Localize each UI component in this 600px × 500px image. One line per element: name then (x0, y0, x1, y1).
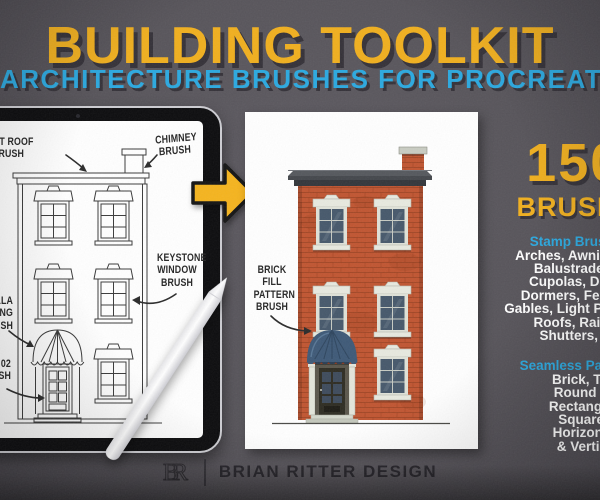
pattern-brushes-header: Seamless Pattern Brushes: (452, 359, 600, 373)
promo-column: 150+ BRUSHES! Stamp Brushes Include: Arc… (452, 136, 600, 453)
label-chimney-brush: CHIMNEY BRUSH (155, 131, 195, 159)
brush-count: 150+ (436, 136, 600, 190)
brick-label-arrow (267, 312, 319, 340)
pattern-brushes-line: Square Blocks, (452, 413, 600, 426)
br-monogram-icon: B R (163, 457, 191, 487)
annotation-arrows (7, 155, 176, 398)
brush-count-label: BRUSHES! (436, 194, 600, 221)
stamp-brushes-line: Shutters, & Windows (452, 329, 600, 342)
label-flat-roof-brush: FLAT ROOF BRUSH (0, 136, 34, 161)
camera-icon (76, 114, 80, 118)
label-door-02-brush: DOOR 02 BRUSH (0, 358, 11, 383)
stamp-brushes-line: Cupolas, Domes, Doors, (452, 275, 600, 288)
pattern-brushes-line: Horizontal Lines, (452, 426, 600, 439)
stamp-brushes-line: Arches, Awnings, Balconies, (452, 249, 600, 262)
brand-name: BRIAN RITTER DESIGN (219, 462, 437, 482)
label-umbrella-awning-brush: UMBRELLA AWNING BRUSH (0, 295, 13, 332)
brand-logo: B R BRIAN RITTER DESIGN (150, 454, 450, 490)
stamp-brushes-line: Gables, Light Posts, Pediments, (452, 302, 600, 315)
pattern-brushes-line: & Vertical Lines (452, 440, 600, 453)
pattern-brushes-line: Brick, Terracotta, (452, 373, 600, 386)
stamp-brushes-line: Dormers, Fences, Fencing, (452, 289, 600, 302)
stamp-brushes-line: Roofs, Railings, Stairs, (452, 316, 600, 329)
label-brick-fill-pattern-brush: BRICK FILL PATTERN BRUSH (254, 264, 291, 313)
stamp-brushes-header: Stamp Brushes Include: (452, 235, 600, 249)
stamp-brushes-line: Balustrades, Columns, (452, 262, 600, 275)
label-keystone-window-brush: KEYSTONE WINDOW BRUSH (157, 252, 197, 289)
pattern-brushes-line: Rectangle Blocks, (452, 400, 600, 413)
pattern-brushes-line: Round Shingles, (452, 386, 600, 399)
line-art-layer: FLAT ROOF BRUSH CHIMNEY BRUSH KEYSTONE W… (0, 121, 199, 434)
svg-text:R: R (172, 460, 188, 486)
page-subtitle: ARCHITECTURE BRUSHES FOR PROCREATE (0, 64, 600, 95)
logo-divider (204, 459, 206, 486)
